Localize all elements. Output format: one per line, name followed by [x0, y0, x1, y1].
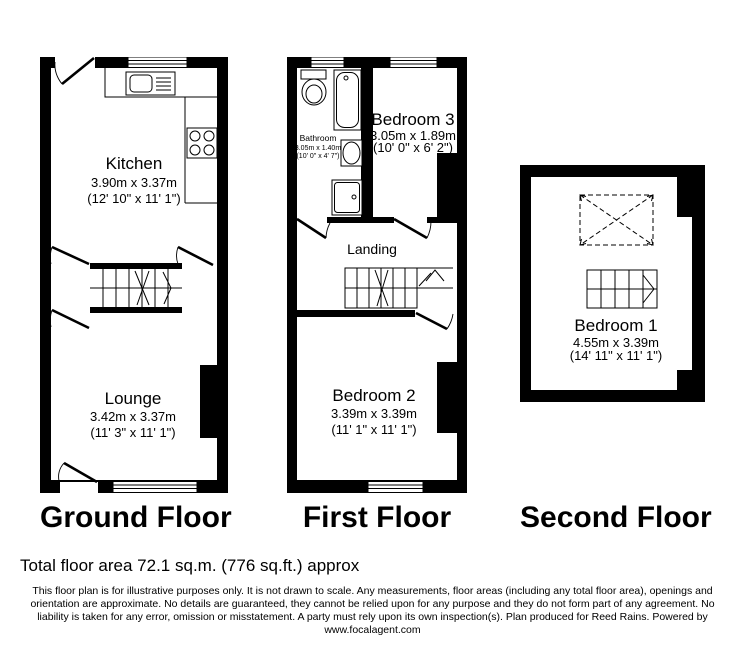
lounge-dims-metric: 3.42m x 3.37m	[90, 409, 176, 424]
disclaimer-text: This floor plan is for illustrative purp…	[0, 585, 745, 637]
landing-label: Landing	[347, 241, 397, 257]
ground-floor-title: Ground Floor	[40, 501, 228, 535]
hob-icon	[187, 128, 217, 158]
lounge-window	[113, 482, 197, 493]
total-floor-area-text: Total floor area 72.1 sq.m. (776 sq.ft.)…	[20, 556, 359, 576]
kitchen-window	[128, 57, 187, 68]
disclaimer-line-4: www.focalagent.com	[0, 624, 745, 637]
lounge-chimney-breast	[200, 365, 217, 438]
shower-icon	[332, 180, 362, 215]
kitchen-dims-metric: 3.90m x 3.37m	[91, 175, 177, 190]
bedroom2-dims-metric: 3.39m x 3.39m	[331, 406, 417, 421]
bathroom-window	[311, 57, 344, 68]
kitchen-label: Kitchen	[106, 154, 163, 173]
bathroom-dims-metric: 3.05m x 1.40m	[295, 145, 341, 152]
bath-icon	[334, 70, 361, 130]
second-floor-plan: Bedroom 1 4.55m x 3.39m (14' 11" x 11' 1…	[520, 165, 705, 402]
bedroom2-chimney-breast	[437, 362, 457, 433]
ground-floor-plan: Kitchen 3.90m x 3.37m (12' 10" x 11' 1")	[40, 57, 228, 493]
sink-icon	[126, 72, 175, 95]
bedroom1-dims-imperial: (14' 11" x 11' 1")	[570, 348, 662, 363]
first-floor-plan: Bathroom 3.05m x 1.40m (10' 0" x 4' 7") …	[287, 57, 467, 493]
bedroom3-label: Bedroom 3	[371, 110, 454, 129]
bedroom2-window	[368, 482, 423, 493]
first-floor-title: First Floor	[287, 501, 467, 535]
bedroom2-label: Bedroom 2	[332, 386, 415, 405]
toilet-icon	[301, 70, 326, 105]
kitchen-dims-imperial: (12' 10" x 11' 1")	[87, 191, 180, 206]
lounge-label: Lounge	[105, 389, 162, 408]
disclaimer-line-1: This floor plan is for illustrative purp…	[0, 585, 745, 598]
bedroom1-label: Bedroom 1	[574, 316, 657, 335]
bedroom3-chimney-breast	[437, 153, 457, 217]
floorplan-page: Kitchen 3.90m x 3.37m (12' 10" x 11' 1")	[0, 0, 745, 646]
disclaimer-line-3: liability is taken for any error, omissi…	[0, 611, 745, 624]
bedroom2-top-wall	[297, 310, 415, 317]
disclaimer-line-2: orientation are approximate. No details …	[0, 598, 745, 611]
bathroom-dims-imperial: (10' 0" x 4' 7")	[296, 153, 339, 160]
bathroom-divider-wall	[361, 68, 373, 223]
bedroom3-dims-imperial: (10' 0" x 6' 2")	[373, 140, 453, 155]
lounge-dims-imperial: (11' 3" x 11' 1")	[90, 425, 175, 440]
second-floor-title: Second Floor	[520, 501, 705, 535]
basin-icon	[341, 140, 362, 166]
bedroom3-window	[390, 57, 437, 68]
bedroom2-dims-imperial: (11' 1" x 11' 1")	[331, 422, 416, 437]
bathroom-label: Bathroom	[300, 133, 337, 143]
